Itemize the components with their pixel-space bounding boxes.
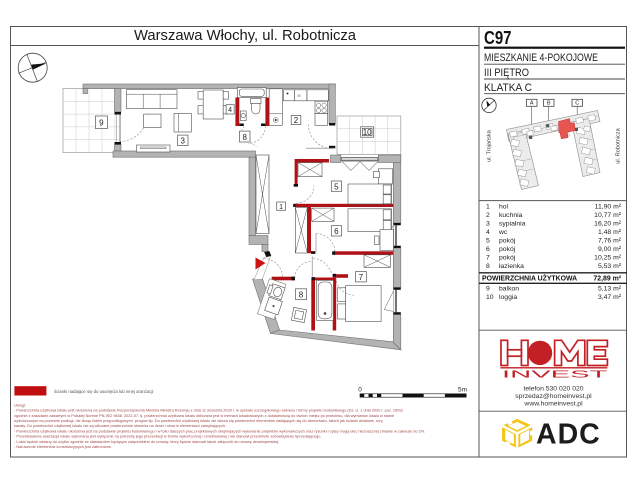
svg-text:Uwagi:: Uwagi: <box>14 403 26 407</box>
svg-text:- Powierzchnia użytkowa lokalu: - Powierzchnia użytkowa lokalu określona… <box>14 429 425 433</box>
svg-text:- Naruszenie elementów konstru: - Naruszenie elementów konstrukcyjnych j… <box>14 445 112 449</box>
svg-text:www.homeinvest.pl: www.homeinvest.pl <box>523 400 583 407</box>
svg-text:A: A <box>530 101 534 107</box>
svg-text:balkon: balkon <box>499 285 519 292</box>
svg-text:1: 1 <box>486 204 490 211</box>
svg-text:- Przedstawiona aranżacja loka: - Przedstawiona aranżacja lokalu wykonan… <box>14 435 321 439</box>
svg-text:5: 5 <box>334 183 339 192</box>
svg-text:3: 3 <box>486 220 490 227</box>
svg-text:7,76 m²: 7,76 m² <box>598 237 622 244</box>
svg-text:9: 9 <box>99 119 104 128</box>
svg-text:10: 10 <box>486 294 494 301</box>
svg-text:1,48 m²: 1,48 m² <box>598 229 622 236</box>
svg-text:KLATKA C: KLATKA C <box>484 82 532 94</box>
svg-text:III PIĘTRO: III PIĘTRO <box>484 67 529 79</box>
svg-text:MIESZKANIE 4-POKOJOWE: MIESZKANIE 4-POKOJOWE <box>484 52 598 64</box>
svg-text:wykończonym na poziomie podłog: wykończonym na poziomie podłogi, nie lic… <box>14 419 383 423</box>
svg-text:ul. Trojańska: ul. Trojańska <box>487 129 493 162</box>
svg-text:72,89 m²: 72,89 m² <box>593 275 621 282</box>
svg-text:sprzedaz@homeinvest.pl: sprzedaz@homeinvest.pl <box>515 393 592 400</box>
svg-text:0: 0 <box>358 386 362 393</box>
svg-text:ścianki nadające się do usunię: ścianki nadające się do usunięcia lub in… <box>54 389 153 394</box>
svg-text:1: 1 <box>279 204 283 211</box>
svg-text:pokój: pokój <box>499 237 516 244</box>
svg-text:3,47 m²: 3,47 m² <box>598 294 622 301</box>
svg-text:- Powierzchnia użytkowa lokalu: - Powierzchnia użytkowa lokalu jest okre… <box>14 409 403 413</box>
svg-text:M: M <box>298 94 301 98</box>
svg-text:wc: wc <box>498 229 508 236</box>
svg-text:telefon 530 020 020: telefon 530 020 020 <box>523 386 583 393</box>
svg-text:9: 9 <box>486 285 490 292</box>
svg-text:ul. Robotnicza: ul. Robotnicza <box>616 127 622 163</box>
svg-text:POWIERZCHNIA UŻYTKOWA: POWIERZCHNIA UŻYTKOWA <box>482 273 577 282</box>
svg-text:8: 8 <box>242 133 247 142</box>
svg-text:7: 7 <box>359 273 364 282</box>
svg-text:kuchnia: kuchnia <box>499 212 523 219</box>
svg-text:6: 6 <box>334 227 339 236</box>
svg-text:10,77 m²: 10,77 m² <box>594 212 622 219</box>
svg-text:C97: C97 <box>484 28 512 48</box>
svg-text:C: C <box>575 101 579 107</box>
svg-text:16,20 m²: 16,20 m² <box>594 220 622 227</box>
svg-text:- Lokal będzie oddany do użytk: - Lokal będzie oddany do użytku zgodnie … <box>14 440 279 444</box>
svg-text:kanały. Do powierzchni użytkow: kanały. Do powierzchni użytkowej lokalu … <box>14 424 226 428</box>
svg-text:10: 10 <box>363 128 372 137</box>
svg-text:zgodnie z zasadami zawartymi w: zgodnie z zasadami zawartymi w Polskiej … <box>14 414 394 418</box>
svg-text:2: 2 <box>486 212 490 219</box>
svg-text:9,00 m²: 9,00 m² <box>598 246 622 253</box>
svg-text:5: 5 <box>486 237 490 244</box>
svg-text:sypialnia: sypialnia <box>499 220 526 227</box>
svg-text:11,90 m²: 11,90 m² <box>595 204 622 211</box>
svg-text:hol: hol <box>499 204 509 211</box>
svg-text:loggia: loggia <box>499 294 517 301</box>
svg-text:5,13 m²: 5,13 m² <box>598 285 622 292</box>
svg-text:4: 4 <box>486 229 490 236</box>
svg-text:6: 6 <box>486 246 490 253</box>
svg-text:Warszawa Włochy, ul. Robotnicz: Warszawa Włochy, ul. Robotnicza <box>134 28 357 44</box>
svg-text:ADC: ADC <box>536 419 601 451</box>
svg-text:INVEST: INVEST <box>502 370 608 381</box>
svg-text:4: 4 <box>228 107 232 114</box>
svg-text:pokój: pokój <box>499 255 516 262</box>
svg-text:10,25 m²: 10,25 m² <box>594 255 622 262</box>
svg-text:8: 8 <box>486 263 490 270</box>
svg-text:pokój: pokój <box>499 246 516 253</box>
svg-text:8: 8 <box>299 291 304 300</box>
svg-text:7: 7 <box>486 255 490 262</box>
svg-text:5,53 m²: 5,53 m² <box>598 263 622 270</box>
svg-text:2: 2 <box>294 116 299 125</box>
svg-text:3: 3 <box>180 137 185 146</box>
svg-text:5m: 5m <box>458 386 467 393</box>
svg-text:łazienka: łazienka <box>499 263 524 270</box>
svg-text:B: B <box>547 101 551 107</box>
